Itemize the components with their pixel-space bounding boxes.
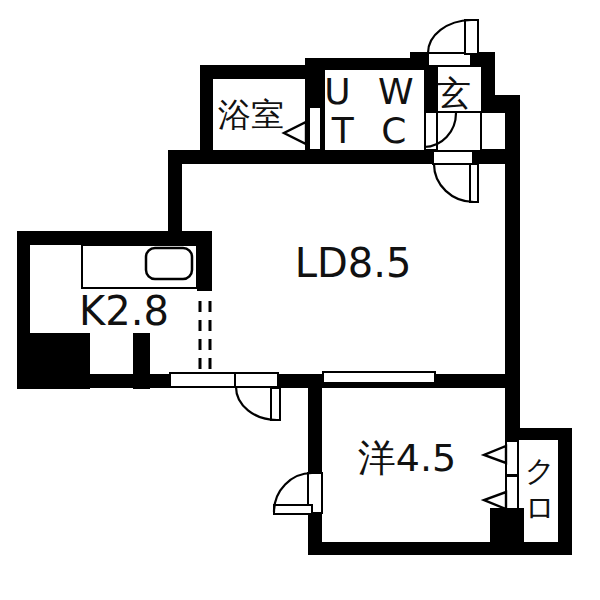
wall-outer-right: [505, 95, 520, 440]
pillar-western-closet: [490, 508, 524, 555]
label-closet-line2: ロ: [525, 490, 556, 525]
floor-plan-canvas: 浴室 U W T C 玄 LD8.5 K2.8 洋4.5 ク ロ: [0, 0, 600, 600]
kitchen-sink: [146, 248, 192, 279]
closet-folding-door-panel-1: [506, 441, 518, 475]
ld-door-leaf: [470, 164, 478, 202]
shoe-cabinet: [481, 112, 506, 150]
label-ut-wc-line2: T C: [331, 110, 415, 151]
entrance-door-leaf: [465, 20, 478, 54]
wall-kitchen-top: [17, 231, 212, 245]
wall-counter-stub: [197, 231, 212, 291]
closet-door-arrow-bottom-icon: [484, 492, 506, 509]
label-bathroom: 浴室: [218, 95, 284, 134]
ld-door-opening: [433, 151, 473, 164]
kitchen-balcony-door-leaf: [271, 388, 280, 420]
label-kitchen: K2.8: [79, 288, 169, 334]
bathroom-door-direction-arrow-icon: [284, 122, 306, 144]
floor-plan: 浴室 U W T C 玄 LD8.5 K2.8 洋4.5 ク ロ: [0, 0, 600, 600]
label-western-room: 洋4.5: [358, 436, 456, 480]
wall-closet-right: [558, 428, 572, 555]
label-living-dining: LD8.5: [295, 240, 412, 286]
wall-western-west: [308, 374, 322, 555]
bathroom-door-panel: [309, 107, 321, 150]
ld-door-swing-arc: [434, 164, 474, 202]
label-ut-wc-line1: U W: [324, 71, 421, 112]
wall-bath-left: [200, 65, 213, 164]
ld-western-opening: [323, 372, 435, 383]
wall-bath-top: [200, 65, 312, 79]
closet-folding-door-panel-2: [506, 476, 518, 509]
closet-door-arrow-top-icon: [484, 446, 506, 463]
wall-bottom-lower-section: [308, 542, 572, 555]
label-closet-line1: ク: [525, 453, 556, 488]
kitchen-window-door-strip: [170, 373, 278, 387]
wall-ld-left: [168, 150, 182, 245]
label-entrance: 玄: [437, 73, 471, 113]
western-door-leaf: [274, 505, 312, 514]
